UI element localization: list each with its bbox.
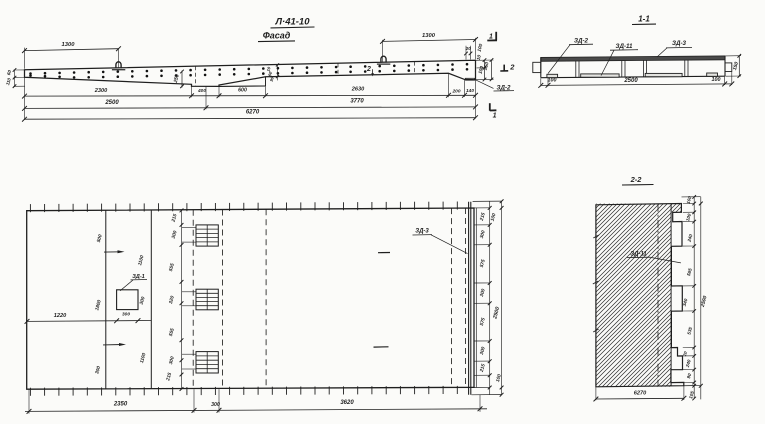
svg-text:2300: 2300 (94, 88, 108, 94)
svg-text:300: 300 (171, 230, 179, 240)
svg-text:2630: 2630 (351, 86, 365, 92)
svg-text:3620: 3620 (340, 400, 354, 406)
svg-text:300: 300 (139, 296, 147, 306)
svg-text:ЗД-11: ЗД-11 (630, 251, 647, 257)
svg-text:250: 250 (482, 61, 490, 72)
svg-text:90: 90 (686, 372, 692, 379)
svg-text:500: 500 (96, 234, 104, 244)
svg-text:20: 20 (465, 46, 472, 52)
svg-text:110: 110 (5, 77, 12, 86)
svg-text:1: 1 (493, 112, 497, 119)
svg-text:340: 340 (682, 298, 689, 307)
svg-text:10: 10 (266, 66, 272, 72)
svg-text:555: 555 (168, 327, 176, 337)
svg-text:2500: 2500 (623, 78, 638, 84)
svg-text:100: 100 (476, 43, 484, 53)
svg-text:ЗД-1: ЗД-1 (132, 274, 145, 280)
svg-text:400: 400 (197, 88, 206, 94)
svg-text:240: 240 (686, 233, 693, 243)
svg-text:1-1: 1-1 (638, 15, 650, 24)
svg-text:6270: 6270 (634, 390, 647, 396)
svg-text:300: 300 (94, 365, 102, 375)
svg-text:575: 575 (479, 259, 487, 269)
svg-text:2500: 2500 (492, 306, 501, 320)
svg-text:140: 140 (466, 88, 474, 94)
svg-text:ЗД-2: ЗД-2 (497, 84, 512, 91)
svg-text:1800: 1800 (94, 299, 103, 311)
svg-text:3770: 3770 (350, 98, 364, 104)
svg-text:1100: 1100 (137, 254, 146, 266)
svg-text:2: 2 (366, 66, 371, 73)
svg-text:Л·41-10: Л·41-10 (275, 17, 311, 28)
svg-text:2-2: 2-2 (630, 175, 643, 184)
svg-text:300: 300 (479, 346, 487, 356)
svg-text:555: 555 (168, 262, 176, 272)
svg-text:585: 585 (686, 267, 693, 276)
svg-text:1: 1 (489, 33, 493, 40)
svg-text:215: 215 (479, 212, 487, 223)
svg-text:300: 300 (479, 230, 487, 240)
svg-text:2350: 2350 (113, 402, 128, 408)
svg-text:200: 200 (451, 88, 460, 94)
svg-text:100: 100 (712, 77, 721, 83)
svg-text:215: 215 (165, 372, 173, 383)
svg-text:300: 300 (211, 402, 220, 408)
svg-text:1300: 1300 (62, 42, 76, 48)
svg-text:6270: 6270 (246, 110, 260, 116)
svg-text:535: 535 (686, 326, 693, 335)
svg-text:215: 215 (170, 213, 178, 224)
svg-text:1100: 1100 (139, 352, 148, 364)
svg-text:600: 600 (238, 88, 247, 94)
svg-text:ЗД-11: ЗД-11 (616, 43, 633, 50)
svg-text:1220: 1220 (54, 313, 67, 319)
svg-text:100: 100 (548, 78, 557, 84)
svg-text:215: 215 (479, 363, 487, 374)
svg-text:2: 2 (509, 62, 515, 71)
svg-text:100: 100 (490, 212, 498, 222)
svg-text:250: 250 (173, 74, 181, 85)
svg-text:100: 100 (685, 213, 692, 222)
svg-text:300: 300 (479, 288, 487, 298)
svg-text:320: 320 (168, 295, 176, 305)
svg-text:20: 20 (682, 350, 688, 357)
svg-text:1300: 1300 (422, 33, 436, 39)
svg-text:ЗД-2: ЗД-2 (574, 37, 589, 44)
svg-text:575: 575 (479, 317, 487, 327)
svg-text:ЗД-3: ЗД-3 (415, 229, 429, 235)
svg-text:60: 60 (6, 69, 12, 76)
svg-text:150: 150 (732, 61, 740, 71)
svg-text:240: 240 (685, 359, 692, 369)
svg-text:300: 300 (168, 356, 176, 366)
svg-text:300: 300 (122, 312, 130, 318)
svg-text:ЗД-3: ЗД-3 (672, 40, 687, 47)
svg-text:Фасад: Фасад (263, 31, 291, 41)
svg-text:2500: 2500 (104, 100, 119, 106)
